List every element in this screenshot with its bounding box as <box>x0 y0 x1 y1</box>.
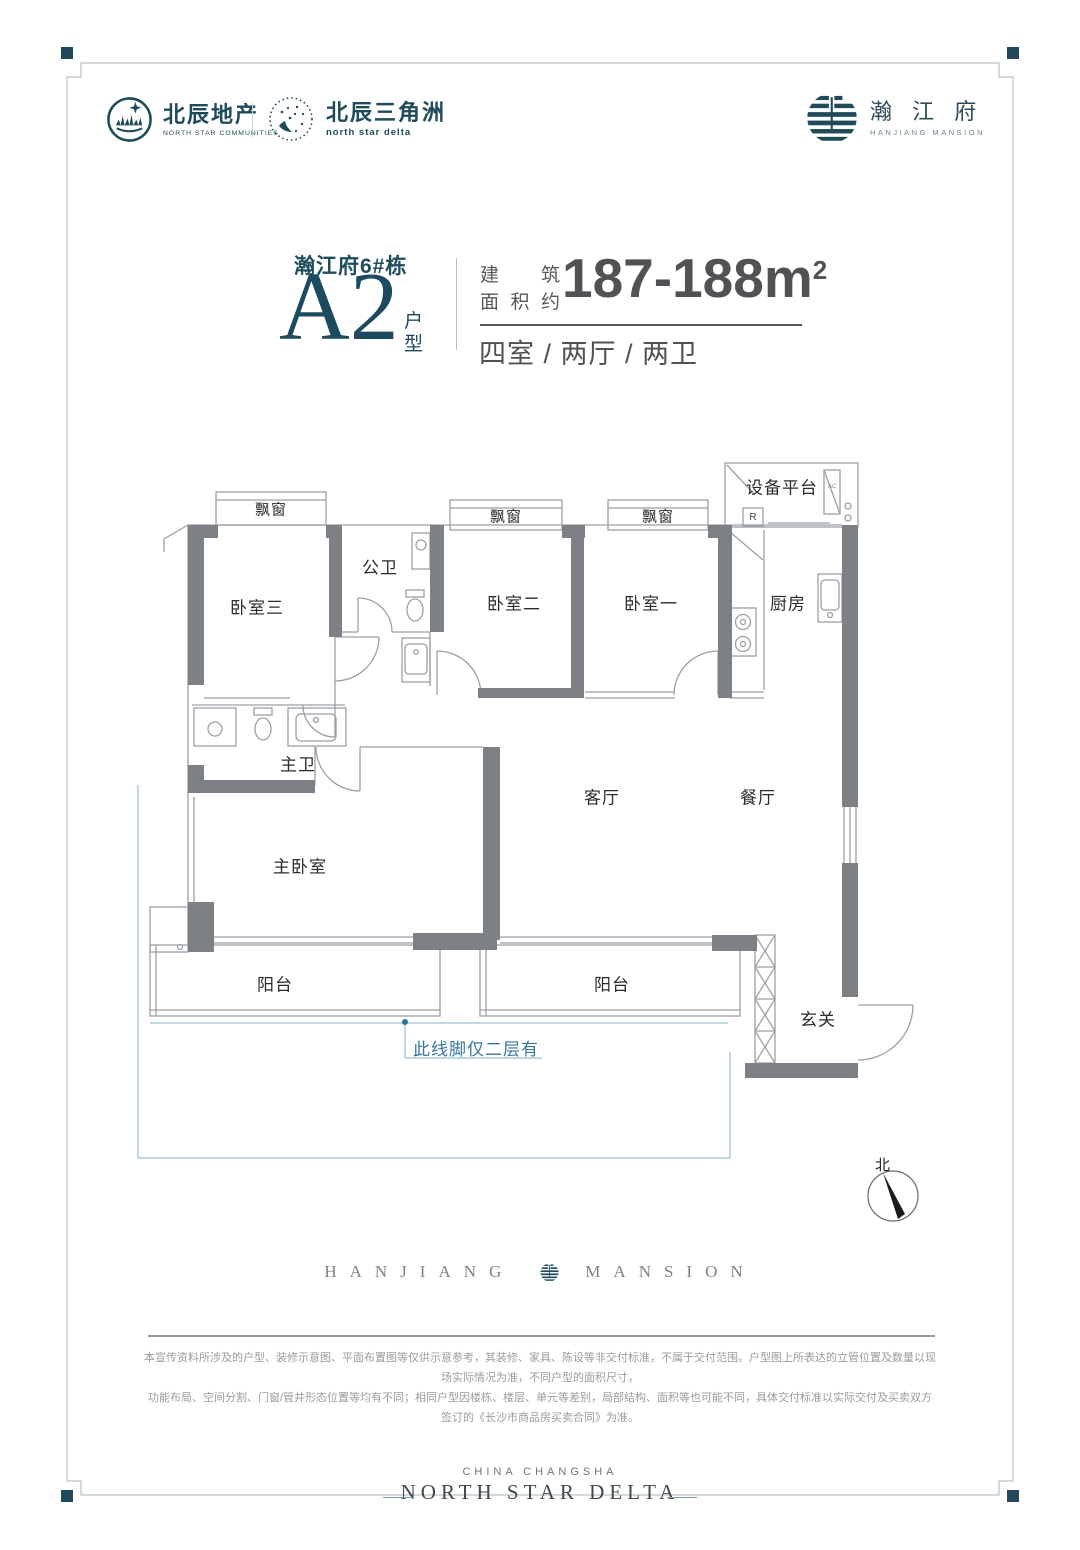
master-bedroom-label: 主卧室 <box>273 853 327 878</box>
room-count-summary: 四室 / 两厅 / 两卫 <box>479 332 698 371</box>
ac-label: AC <box>824 484 840 490</box>
equipment-platform-label: 设备平台 <box>746 474 818 499</box>
public-bathroom-label: 公卫 <box>362 554 398 579</box>
footer-dash-right <box>667 1497 697 1498</box>
disclaimer-line-2: 功能布局、空间分割、门窗/管井形态位置等均有不同；相同户型因楼栋、楼层、单元等差… <box>143 1388 937 1428</box>
title-divider <box>456 258 457 350</box>
dining-room-label: 餐厅 <box>740 784 776 809</box>
logo-left-cn: 北辰地产 <box>163 103 279 127</box>
riser-label: R <box>743 508 763 526</box>
brand-mansion: MANSION <box>585 1262 755 1282</box>
bay-window-3-label: 飘窗 <box>642 506 674 527</box>
bedroom-1-label: 卧室一 <box>624 590 678 615</box>
footer-brand: NORTH STAR DELTA <box>0 1480 1080 1505</box>
bedroom-2-label: 卧室二 <box>487 590 541 615</box>
title-rule <box>480 324 802 326</box>
disclaimer-line-1: 本宣传资料所涉及的户型、装修示意图、平面布置图等仅供示意参考，其装修、家具、陈设… <box>143 1348 937 1388</box>
unit-type-suffix: 户型 <box>404 310 426 356</box>
area-label: 建筑 面积约 <box>480 262 560 316</box>
living-room-label: 客厅 <box>584 784 620 809</box>
floor-plan-drawing <box>130 440 950 1170</box>
bay-window-1-label: 飘窗 <box>255 499 287 520</box>
footer: CHINA CHANGSHA NORTH STAR DELTA <box>0 1466 1080 1505</box>
compass-north-label: 北 <box>875 1157 890 1174</box>
logo-mid-cn: 北辰三角洲 <box>326 101 446 125</box>
master-bathroom-label: 主卫 <box>280 751 316 776</box>
disclaimer: 本宣传资料所涉及的户型、装修示意图、平面布置图等仅供示意参考，其装修、家具、陈设… <box>143 1348 937 1428</box>
footer-city: CHINA CHANGSHA <box>0 1466 1080 1478</box>
brand-seal-icon <box>540 1263 559 1282</box>
foyer-label: 玄关 <box>800 1006 836 1031</box>
logo-mid-en: north star delta <box>326 127 446 138</box>
balcony-left-label: 阳台 <box>257 971 293 996</box>
brand-hanjiang: HANJIANG <box>324 1262 514 1282</box>
north-star-delta-globe-icon <box>266 94 316 144</box>
unit-type-title: A2 <box>279 258 399 356</box>
kitchen-label: 厨房 <box>770 590 806 615</box>
brand-row: HANJIANG MANSION <box>0 1262 1080 1282</box>
north-star-communities-icon <box>106 96 153 143</box>
logo-divider <box>252 103 253 137</box>
floor-plan: 飘窗飘窗飘窗设备平台卧室三公卫卧室二卧室一厨房主卫客厅餐厅主卧室阳台阳台玄关 此… <box>130 440 950 1170</box>
north-compass-icon: 北 <box>856 1148 936 1230</box>
bay-window-2-label: 飘窗 <box>490 506 522 527</box>
logo-left-en: NORTH STAR COMMUNITIES <box>163 130 279 137</box>
header: 北辰地产 NORTH STAR COMMUNITIES 北辰三角洲 north … <box>0 0 1080 200</box>
logo-hanjiang-mansion: 瀚 江 府 HANJIANG MANSION <box>806 92 985 144</box>
logo-right-en: HANJIANG MANSION <box>870 128 985 137</box>
footer-dash-left <box>383 1497 413 1498</box>
molding-note: 此线脚仅二层有 <box>413 1035 539 1060</box>
logo-north-star-delta: 北辰三角洲 north star delta <box>266 94 446 144</box>
area-value: 187-188m2 <box>562 246 827 310</box>
balcony-right-label: 阳台 <box>594 971 630 996</box>
hanjiang-mansion-seal-icon <box>806 92 858 144</box>
logo-right-cn: 瀚 江 府 <box>870 100 985 124</box>
poster-page: 北辰地产 NORTH STAR COMMUNITIES 北辰三角洲 north … <box>0 0 1080 1550</box>
disclaimer-rule <box>148 1335 935 1337</box>
bedroom-3-label: 卧室三 <box>230 594 284 619</box>
